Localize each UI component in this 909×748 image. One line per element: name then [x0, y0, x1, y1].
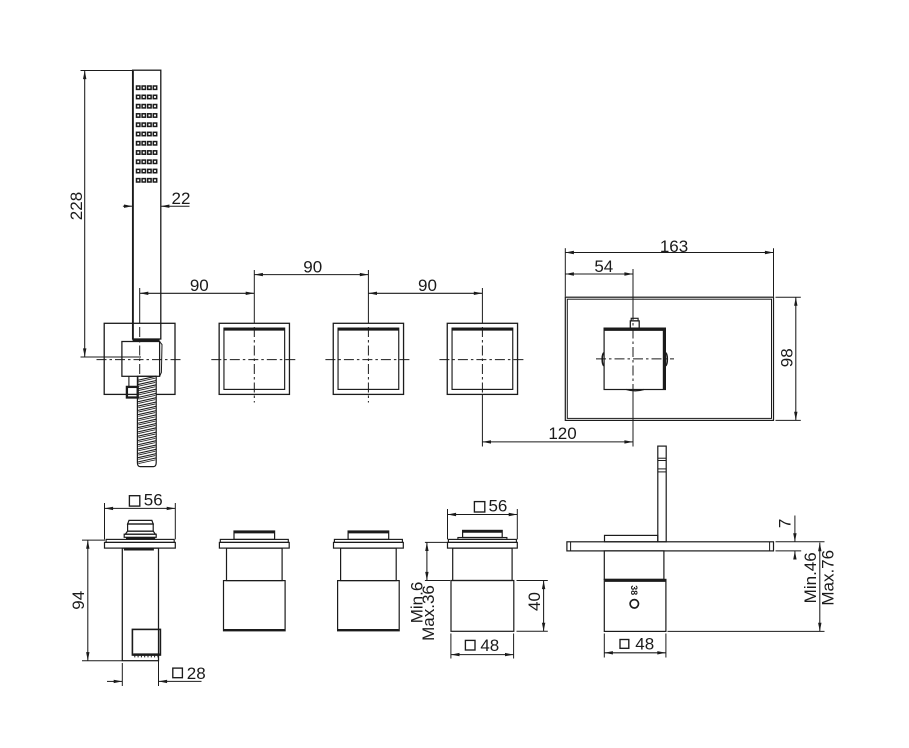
svg-text:Max.76: Max.76 — [818, 550, 837, 606]
svg-text:120: 120 — [548, 424, 576, 443]
svg-text:22: 22 — [172, 189, 191, 208]
svg-text:28: 28 — [187, 664, 206, 683]
svg-text:56: 56 — [144, 490, 163, 509]
svg-text:40: 40 — [525, 592, 544, 611]
svg-text:163: 163 — [660, 237, 688, 256]
svg-text:56: 56 — [488, 496, 507, 515]
svg-text:48: 48 — [635, 635, 654, 654]
svg-text:94: 94 — [69, 591, 88, 610]
svg-text:48: 48 — [480, 636, 499, 655]
svg-text:90: 90 — [190, 276, 209, 295]
svg-text:90: 90 — [303, 258, 322, 277]
svg-text:98: 98 — [778, 348, 797, 367]
svg-text:90: 90 — [418, 276, 437, 295]
svg-text:228: 228 — [67, 192, 86, 220]
svg-text:54: 54 — [594, 257, 613, 276]
svg-text:7: 7 — [776, 519, 795, 528]
svg-text:Max.36: Max.36 — [419, 585, 438, 641]
svg-text:38: 38 — [629, 585, 639, 595]
